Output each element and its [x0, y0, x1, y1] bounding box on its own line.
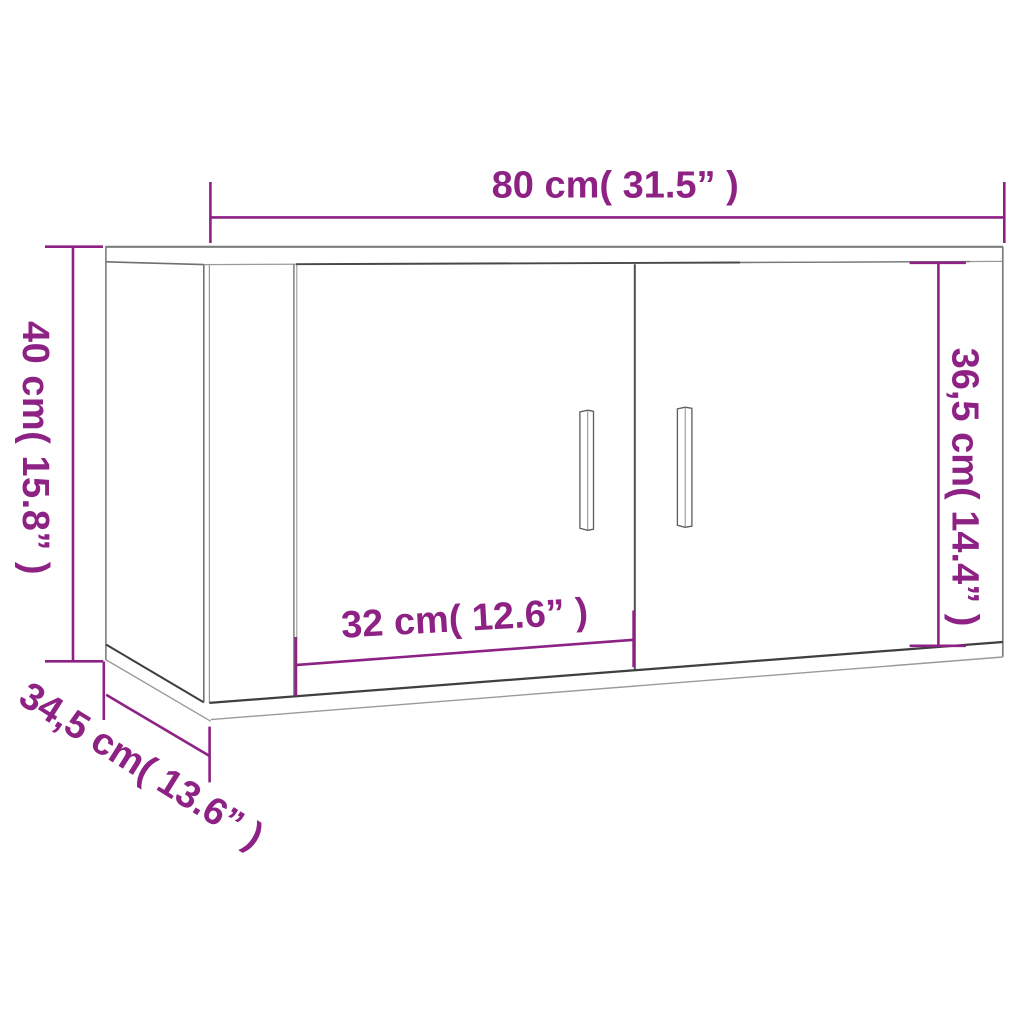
svg-text:40 cm( 15.8” ): 40 cm( 15.8” ) — [14, 321, 56, 575]
svg-text:36,5 cm( 14.4” ): 36,5 cm( 14.4” ) — [944, 348, 986, 627]
svg-text:80 cm( 31.5” ): 80 cm( 31.5” ) — [492, 165, 739, 207]
